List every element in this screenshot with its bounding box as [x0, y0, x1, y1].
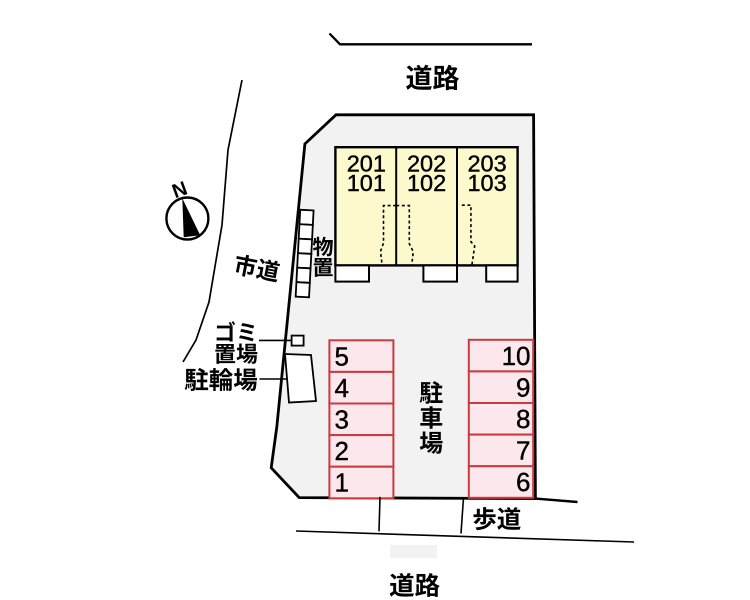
svg-text:101: 101	[347, 170, 386, 196]
svg-text:1: 1	[335, 468, 349, 498]
svg-text:7: 7	[516, 436, 530, 466]
svg-text:8: 8	[516, 404, 530, 434]
svg-text:102: 102	[407, 170, 446, 196]
svg-text:9: 9	[516, 372, 530, 402]
svg-text:4: 4	[335, 373, 349, 403]
svg-text:10: 10	[502, 341, 531, 371]
svg-text:5: 5	[335, 341, 349, 371]
svg-text:N: N	[169, 178, 190, 204]
svg-text:103: 103	[467, 170, 506, 196]
svg-text:6: 6	[516, 467, 530, 497]
svg-text:3: 3	[335, 405, 349, 435]
svg-text:2: 2	[335, 436, 349, 466]
